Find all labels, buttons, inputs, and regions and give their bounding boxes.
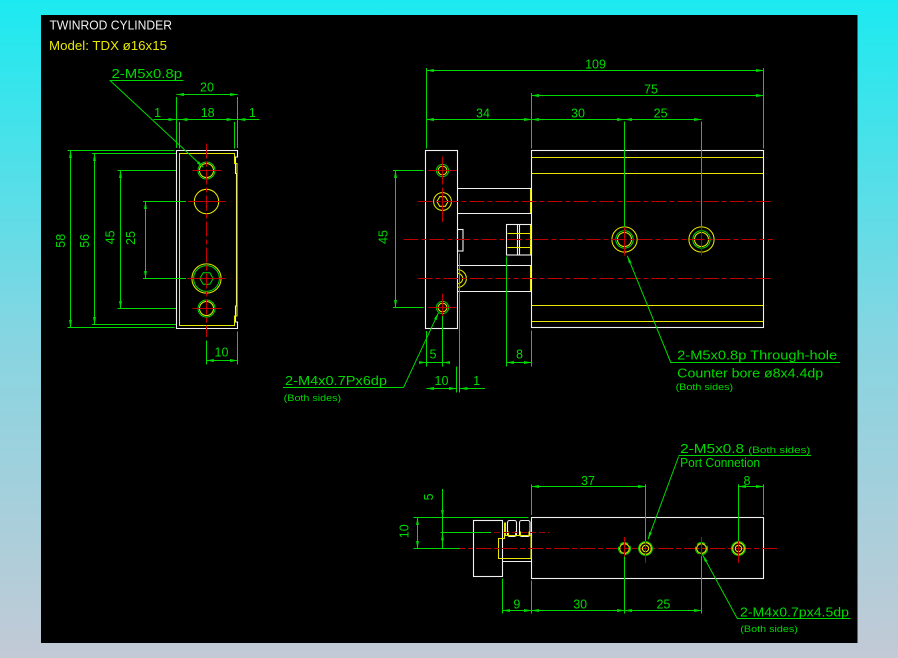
svg-text:25: 25 [654, 106, 668, 120]
svg-text:75: 75 [644, 82, 658, 96]
svg-text:1: 1 [154, 106, 161, 120]
svg-text:2-M4x0.7Px6dp: 2-M4x0.7Px6dp [285, 373, 387, 388]
svg-text:(Both sides): (Both sides) [740, 624, 798, 634]
svg-text:10: 10 [215, 345, 229, 359]
svg-text:56: 56 [78, 234, 92, 248]
svg-text:25: 25 [656, 597, 670, 611]
svg-text:TWINROD CYLINDER: TWINROD CYLINDER [50, 18, 173, 33]
svg-text:8: 8 [744, 474, 751, 488]
svg-text:37: 37 [581, 474, 595, 488]
svg-text:Counter bore ø8x4.4dp: Counter bore ø8x4.4dp [677, 366, 823, 381]
svg-text:Port Connetion: Port Connetion [680, 455, 760, 470]
svg-text:1: 1 [249, 106, 256, 120]
svg-text:9: 9 [513, 597, 520, 611]
svg-text:5: 5 [430, 348, 437, 362]
svg-text:30: 30 [573, 597, 587, 611]
svg-text:2-M5x0.8p Through-hole: 2-M5x0.8p Through-hole [677, 348, 837, 363]
svg-text:18: 18 [201, 106, 215, 120]
svg-text:2-M4x0.7px4.5dp: 2-M4x0.7px4.5dp [740, 604, 849, 619]
svg-text:(Both sides): (Both sides) [748, 445, 810, 455]
svg-text:10: 10 [435, 374, 449, 388]
svg-text:109: 109 [585, 57, 606, 71]
svg-text:25: 25 [124, 231, 138, 245]
svg-text:45: 45 [104, 230, 118, 244]
svg-text:30: 30 [571, 106, 585, 120]
svg-text:(Both sides): (Both sides) [676, 382, 734, 392]
svg-text:Model: TDX ø16x15: Model: TDX ø16x15 [49, 38, 167, 53]
svg-text:45: 45 [377, 230, 391, 244]
svg-text:8: 8 [516, 348, 523, 362]
svg-text:58: 58 [54, 234, 68, 248]
svg-text:5: 5 [422, 493, 436, 500]
svg-text:20: 20 [200, 81, 214, 95]
svg-text:10: 10 [397, 524, 411, 538]
svg-text:34: 34 [476, 106, 490, 120]
svg-text:1: 1 [473, 374, 480, 388]
svg-text:(Both sides): (Both sides) [284, 393, 341, 403]
svg-text:2-M5x0.8p: 2-M5x0.8p [112, 66, 183, 81]
